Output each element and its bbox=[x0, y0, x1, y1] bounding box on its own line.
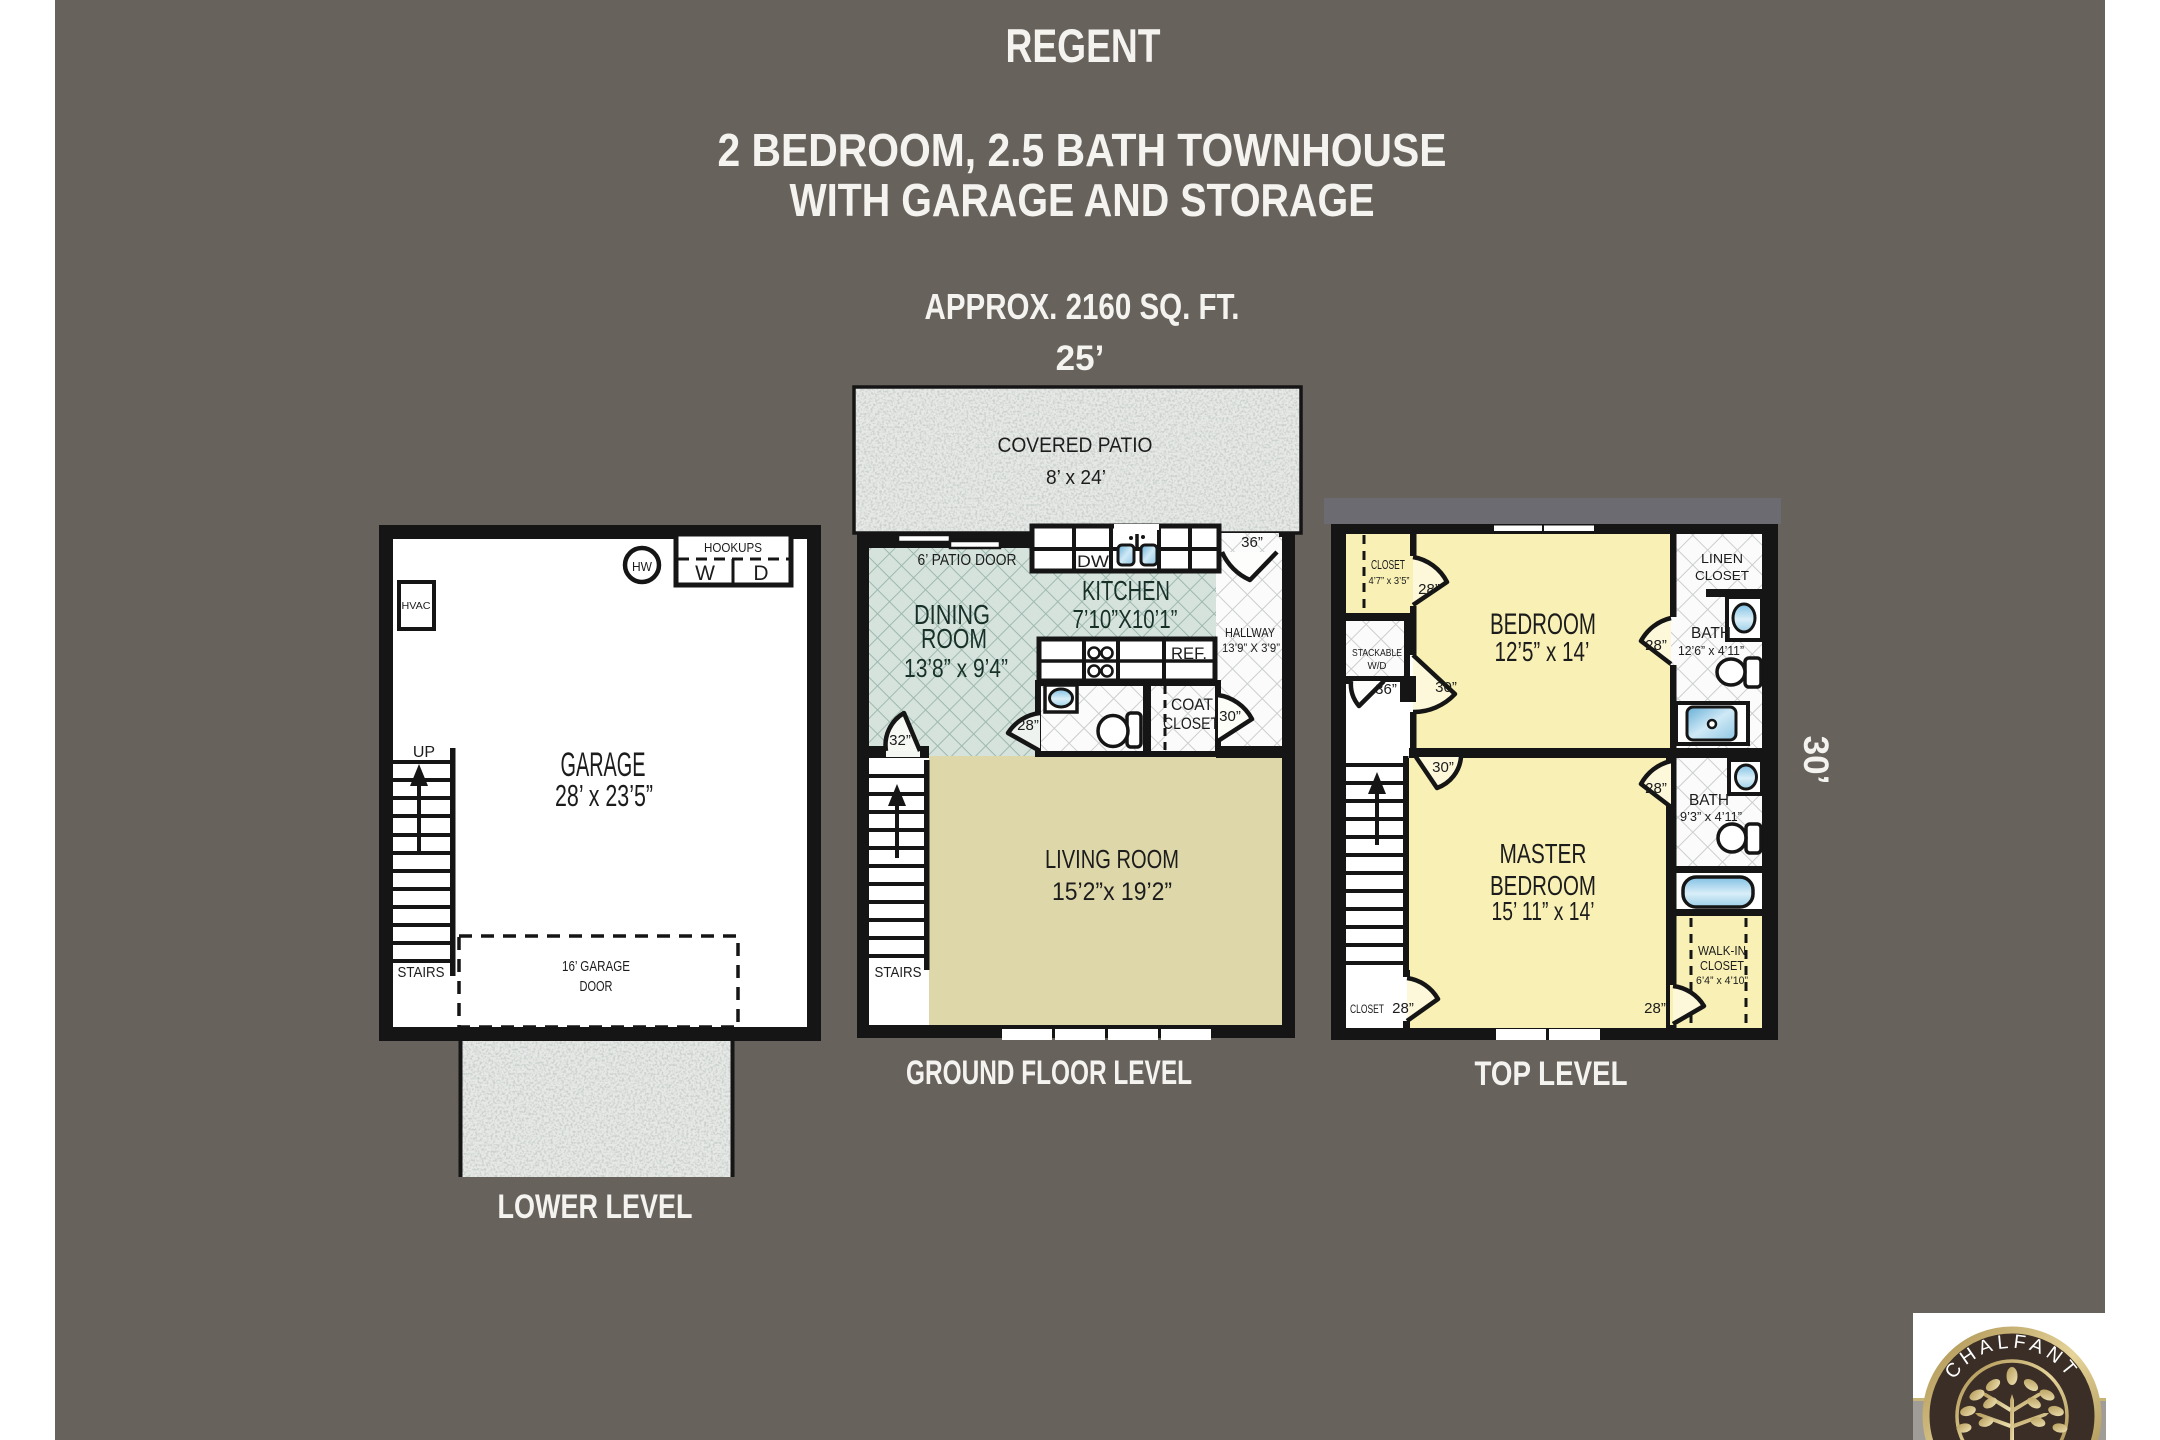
svg-text:30”: 30” bbox=[1432, 759, 1454, 776]
svg-text:13’8” x 9’4”: 13’8” x 9’4” bbox=[904, 653, 1008, 683]
svg-text:CLOSET: CLOSET bbox=[1163, 715, 1219, 733]
svg-text:KITCHEN: KITCHEN bbox=[1082, 575, 1170, 606]
svg-text:WITH GARAGE AND STORAGE: WITH GARAGE AND STORAGE bbox=[790, 174, 1375, 226]
svg-text:9’3” x 4’11”: 9’3” x 4’11” bbox=[1680, 809, 1742, 824]
svg-text:2 BEDROOM, 2.5 BATH TOWNHOUSE: 2 BEDROOM, 2.5 BATH TOWNHOUSE bbox=[718, 124, 1447, 176]
svg-text:28”: 28” bbox=[1645, 637, 1667, 654]
svg-text:28”: 28” bbox=[1644, 1000, 1666, 1017]
svg-text:CLOSET: CLOSET bbox=[1700, 959, 1744, 973]
svg-text:MASTER: MASTER bbox=[1500, 838, 1587, 869]
svg-text:STACKABLE: STACKABLE bbox=[1352, 647, 1402, 659]
svg-text:HVAC: HVAC bbox=[402, 600, 431, 612]
svg-text:12’5” x 14’: 12’5” x 14’ bbox=[1495, 636, 1590, 667]
svg-text:CLOSET: CLOSET bbox=[1695, 568, 1749, 583]
svg-text:28”: 28” bbox=[1392, 1000, 1414, 1017]
svg-text:UP: UP bbox=[413, 744, 435, 761]
svg-text:STAIRS: STAIRS bbox=[398, 965, 445, 981]
svg-text:LIVING ROOM: LIVING ROOM bbox=[1045, 844, 1179, 874]
svg-text:REF.: REF. bbox=[1171, 644, 1207, 663]
svg-text:36”: 36” bbox=[1375, 681, 1397, 698]
svg-text:7’10”X10’1”: 7’10”X10’1” bbox=[1073, 604, 1178, 634]
svg-text:W/D: W/D bbox=[1368, 660, 1387, 672]
svg-text:TOP LEVEL: TOP LEVEL bbox=[1475, 1055, 1628, 1093]
svg-text:4’7” x 3’5”: 4’7” x 3’5” bbox=[1369, 575, 1410, 587]
svg-text:8’ x 24’: 8’ x 24’ bbox=[1046, 467, 1106, 489]
svg-text:28”: 28” bbox=[1645, 780, 1667, 797]
svg-text:DOOR: DOOR bbox=[580, 978, 613, 995]
svg-text:BATH: BATH bbox=[1691, 625, 1731, 642]
svg-text:ROOM: ROOM bbox=[921, 623, 987, 654]
svg-text:COAT: COAT bbox=[1171, 696, 1213, 714]
svg-text:12’6” x 4’11”: 12’6” x 4’11” bbox=[1678, 643, 1744, 658]
svg-text:16’ GARAGE: 16’ GARAGE bbox=[562, 958, 630, 975]
svg-text:13’9” X 3’9”: 13’9” X 3’9” bbox=[1222, 643, 1280, 655]
svg-text:APPROX. 2160 SQ. FT.: APPROX. 2160 SQ. FT. bbox=[925, 286, 1240, 327]
svg-text:30”: 30” bbox=[1219, 708, 1241, 725]
svg-text:CLOSET: CLOSET bbox=[1371, 558, 1405, 572]
svg-text:BATH: BATH bbox=[1689, 792, 1729, 809]
svg-text:HW: HW bbox=[632, 559, 653, 574]
svg-text:HALLWAY: HALLWAY bbox=[1225, 626, 1276, 640]
svg-text:6’4” x 4’10”: 6’4” x 4’10” bbox=[1696, 975, 1748, 987]
svg-text:36”: 36” bbox=[1241, 534, 1263, 551]
svg-text:32”: 32” bbox=[889, 732, 911, 749]
svg-text:28’ x 23’5”: 28’ x 23’5” bbox=[555, 778, 653, 813]
svg-text:CLOSET: CLOSET bbox=[1350, 1004, 1384, 1016]
svg-text:GROUND FLOOR LEVEL: GROUND FLOOR LEVEL bbox=[906, 1054, 1192, 1092]
svg-text:28”: 28” bbox=[1418, 581, 1440, 598]
svg-text:15’ 11” x 14’: 15’ 11” x 14’ bbox=[1492, 896, 1595, 926]
svg-text:LINEN: LINEN bbox=[1701, 551, 1743, 566]
svg-text:HOOKUPS: HOOKUPS bbox=[704, 540, 762, 555]
svg-text:DW: DW bbox=[1077, 552, 1109, 571]
svg-text:25’: 25’ bbox=[1056, 339, 1105, 378]
svg-text:REGENT: REGENT bbox=[1006, 19, 1161, 72]
svg-text:LOWER LEVEL: LOWER LEVEL bbox=[498, 1188, 693, 1226]
svg-text:D: D bbox=[753, 562, 768, 585]
svg-text:W: W bbox=[695, 562, 715, 585]
svg-text:15’2”x 19’2”: 15’2”x 19’2” bbox=[1052, 878, 1172, 906]
svg-text:STAIRS: STAIRS bbox=[875, 965, 922, 981]
svg-text:6’ PATIO DOOR: 6’ PATIO DOOR bbox=[918, 552, 1017, 569]
svg-text:COVERED PATIO: COVERED PATIO bbox=[998, 434, 1153, 457]
svg-text:WALK-IN: WALK-IN bbox=[1698, 944, 1746, 958]
svg-text:30”: 30” bbox=[1435, 679, 1457, 696]
svg-text:28”: 28” bbox=[1017, 717, 1039, 734]
svg-text:30’: 30’ bbox=[1796, 736, 1835, 785]
